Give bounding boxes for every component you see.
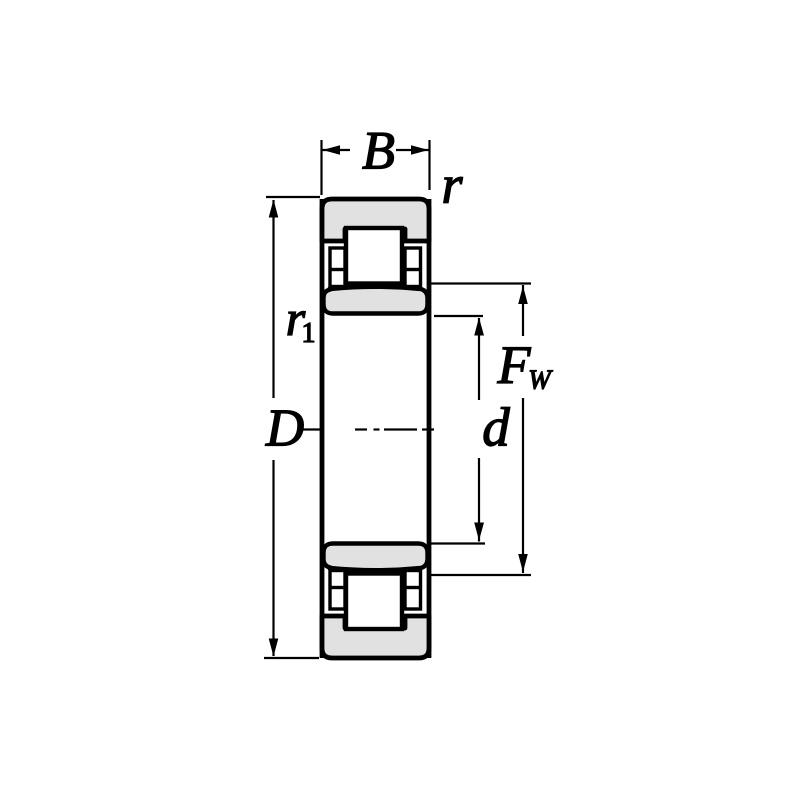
svg-text:F: F [497,335,532,395]
svg-text:B: B [362,121,395,181]
svg-text:d: d [482,397,510,458]
svg-text:W: W [528,365,553,395]
svg-text:D: D [265,400,304,458]
svg-text:1: 1 [302,318,316,349]
svg-text:r: r [441,155,463,215]
